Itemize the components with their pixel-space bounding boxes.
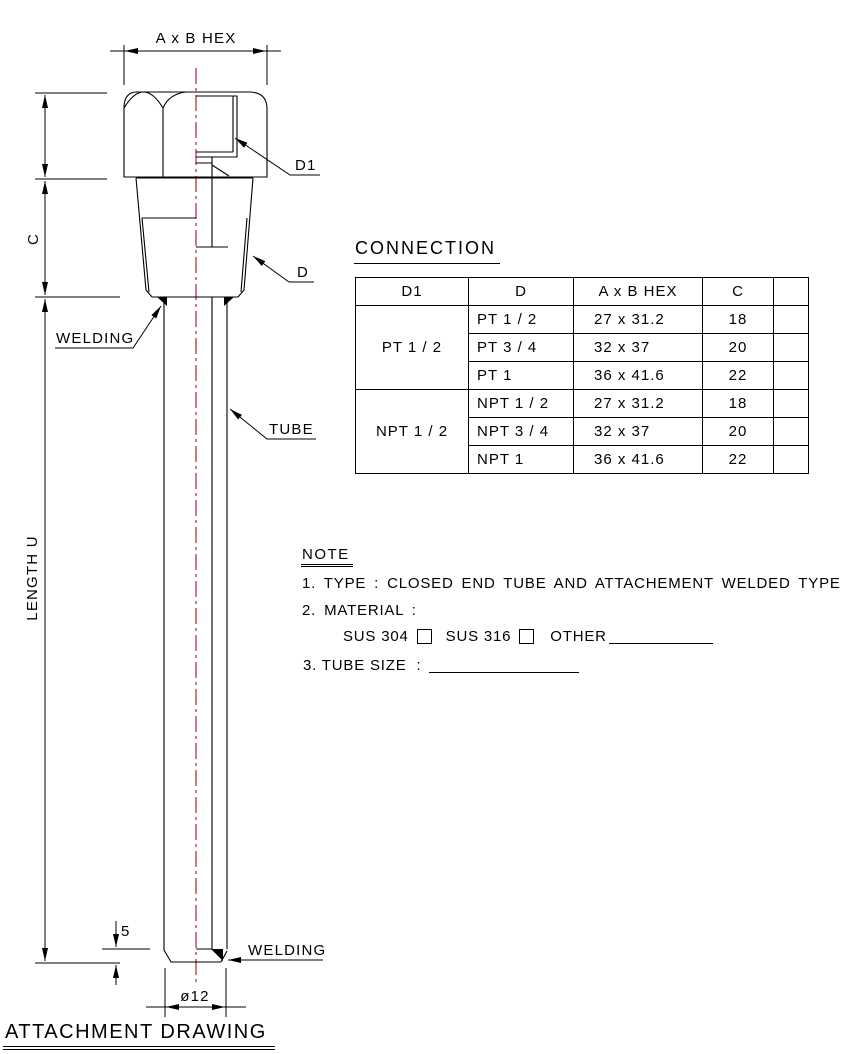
note-title: NOTE bbox=[301, 546, 353, 567]
cell-c: 22 bbox=[703, 446, 774, 474]
cell-extra bbox=[774, 362, 809, 390]
header-d1: D1 bbox=[356, 278, 469, 306]
cell-c: 18 bbox=[703, 390, 774, 418]
cell-d: NPT 1 / 2 bbox=[469, 390, 574, 418]
table-row: PT 1 / 2 PT 1 / 2 27 x 31.2 18 bbox=[356, 306, 809, 334]
cell-extra bbox=[774, 334, 809, 362]
cell-d: PT 1 / 2 bbox=[469, 306, 574, 334]
note-item-material: 2. MATERIAL : bbox=[302, 602, 417, 619]
material-option-sus316: SUS 316 bbox=[446, 628, 512, 645]
cell-extra bbox=[774, 446, 809, 474]
cell-d1-pt: PT 1 / 2 bbox=[356, 306, 469, 390]
material-option-other: OTHER bbox=[550, 628, 607, 645]
cell-c: 18 bbox=[703, 306, 774, 334]
material-options-row: SUS 304 SUS 316 OTHER bbox=[343, 628, 713, 645]
header-hex: A x B HEX bbox=[574, 278, 703, 306]
cell-hex: 32 x 37 bbox=[574, 334, 703, 362]
extension-lines bbox=[35, 45, 281, 1017]
tube-size-blank[interactable] bbox=[429, 657, 579, 673]
cell-extra bbox=[774, 306, 809, 334]
cell-d1-npt: NPT 1 / 2 bbox=[356, 390, 469, 474]
table-row: NPT 1 / 2 NPT 1 / 2 27 x 31.2 18 bbox=[356, 390, 809, 418]
c-dim-label: C bbox=[25, 233, 42, 245]
attachment-drawing-page: A x B HEX D1 D C LENGTH U WELDING TUBE 5… bbox=[0, 0, 856, 1054]
sus-304-checkbox[interactable] bbox=[417, 629, 432, 644]
cell-hex: 36 x 41.6 bbox=[574, 362, 703, 390]
thread-section bbox=[136, 178, 253, 297]
cell-hex: 27 x 31.2 bbox=[574, 390, 703, 418]
header-d: D bbox=[469, 278, 574, 306]
cell-hex: 27 x 31.2 bbox=[574, 306, 703, 334]
thermowell-drawing: A x B HEX D1 D C LENGTH U WELDING TUBE 5… bbox=[0, 0, 856, 1054]
welding-upper-label: WELDING bbox=[56, 330, 134, 347]
length-u-dim-label: LENGTH U bbox=[24, 535, 41, 620]
sus-316-checkbox[interactable] bbox=[519, 629, 534, 644]
connection-table: D1 D A x B HEX C PT 1 / 2 PT 1 / 2 27 x … bbox=[355, 277, 809, 474]
hex-width-dim-label: A x B HEX bbox=[156, 30, 237, 47]
note-item-type: 1. TYPE : CLOSED END TUBE AND ATTACHEMEN… bbox=[302, 575, 841, 592]
header-c: C bbox=[703, 278, 774, 306]
cell-d: PT 3 / 4 bbox=[469, 334, 574, 362]
cell-d: NPT 1 bbox=[469, 446, 574, 474]
header-extra bbox=[774, 278, 809, 306]
connection-table-title: CONNECTION bbox=[354, 238, 500, 264]
cell-c: 20 bbox=[703, 334, 774, 362]
table-header-row: D1 D A x B HEX C bbox=[356, 278, 809, 306]
cell-hex: 36 x 41.6 bbox=[574, 446, 703, 474]
other-material-blank[interactable] bbox=[609, 628, 713, 644]
diameter-dim-label: ø12 bbox=[180, 988, 209, 1005]
cell-d: PT 1 bbox=[469, 362, 574, 390]
page-title: ATTACHMENT DRAWING bbox=[3, 1021, 275, 1050]
cell-c: 22 bbox=[703, 362, 774, 390]
cell-d: NPT 3 / 4 bbox=[469, 418, 574, 446]
hex-bore-section bbox=[196, 96, 237, 247]
tube-size-row: 3. TUBE SIZE : bbox=[303, 657, 579, 674]
cell-hex: 32 x 37 bbox=[574, 418, 703, 446]
note-item-tube-size: 3. TUBE SIZE : bbox=[303, 657, 421, 674]
tube-label: TUBE bbox=[269, 421, 314, 438]
hex-head-lobes bbox=[124, 92, 186, 177]
cell-extra bbox=[774, 390, 809, 418]
d-label: D bbox=[297, 264, 309, 281]
d1-label: D1 bbox=[295, 157, 317, 174]
cell-extra bbox=[774, 418, 809, 446]
tip-thickness-dim-label: 5 bbox=[121, 923, 131, 940]
cell-c: 20 bbox=[703, 418, 774, 446]
welding-lower-label: WELDING bbox=[248, 942, 326, 959]
material-option-sus304: SUS 304 bbox=[343, 628, 409, 645]
